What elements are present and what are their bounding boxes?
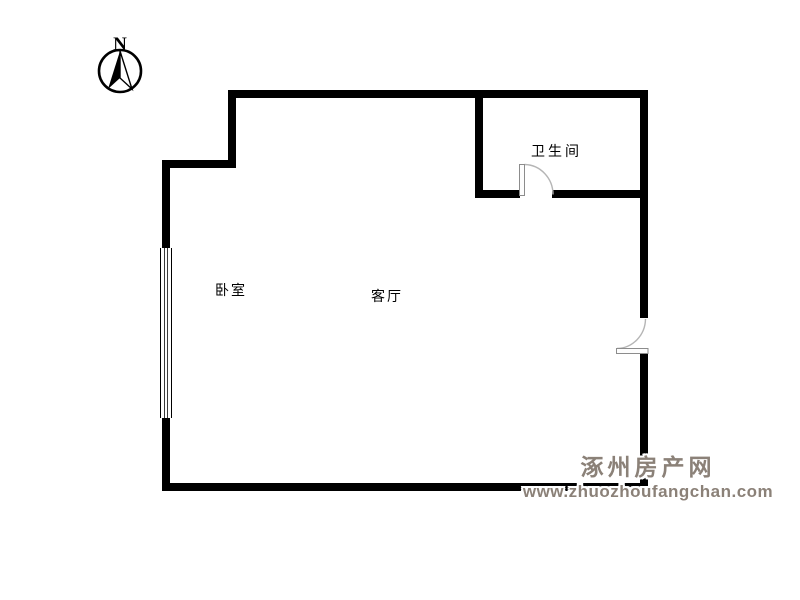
entry-door-icon [617,319,649,354]
compass-needle-right [120,51,132,89]
compass-needle-left [108,51,120,89]
room-label-bathroom: 卫生间 [531,141,582,161]
compass-north-icon: N [90,30,150,96]
room-label-living-room: 客厅 [371,286,403,306]
bathroom-door-icon [520,165,554,196]
room-label-bedroom: 卧室 [215,280,247,300]
floorplan-canvas: N 卧室 客厅 卫生间 涿州房产网 www.zhuozhoufangchan.c… [0,0,800,600]
